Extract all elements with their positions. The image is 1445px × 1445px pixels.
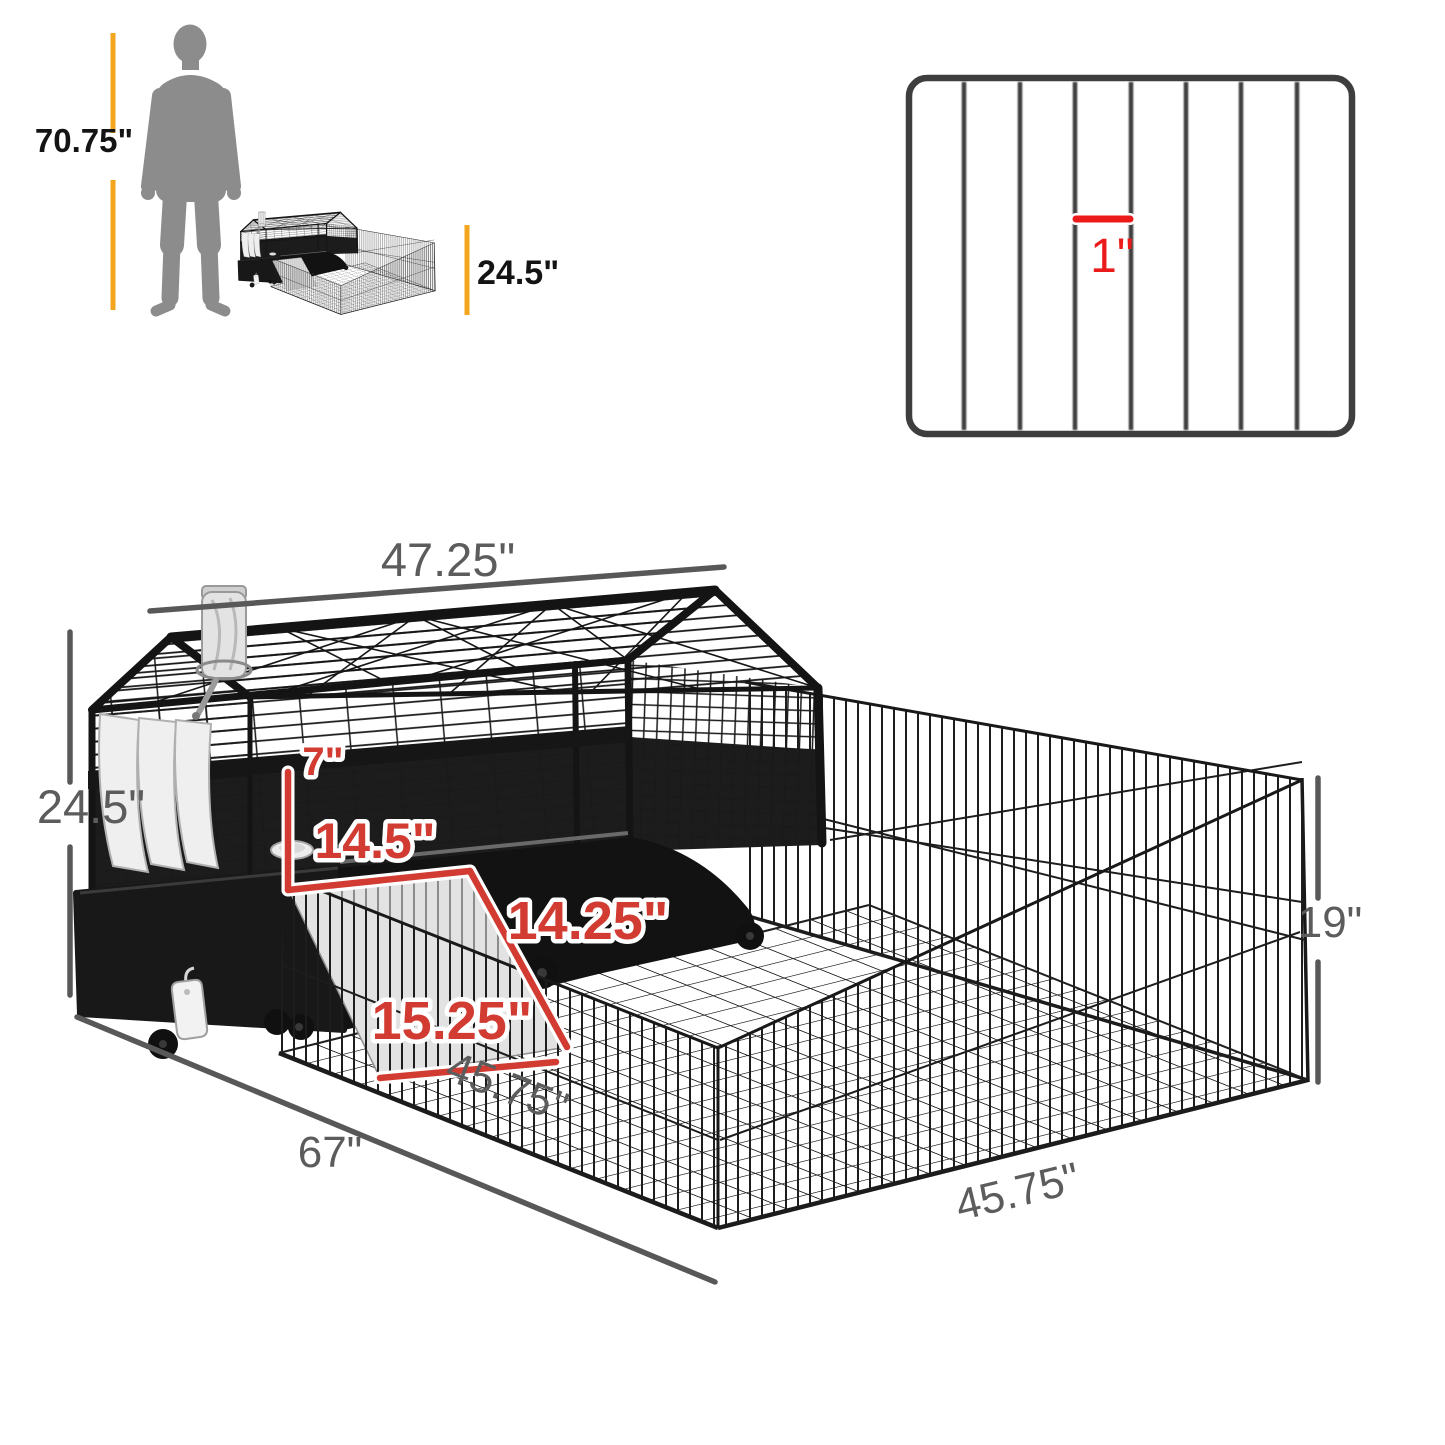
shelf-depth-label: 14.5" [314, 813, 435, 869]
pen-height-label: 19" [1298, 898, 1363, 947]
cage-width-label: 47.25" [381, 533, 515, 586]
scale-reference-panel: 70.75" 24.5" [35, 25, 559, 316]
person-silhouette [141, 25, 241, 312]
front-opening-label: 7" [302, 740, 343, 784]
cage-height-label: 24.5" [37, 780, 145, 833]
bar-gap-label: 1" [1090, 230, 1134, 283]
wire-spacing-panel: 1" [909, 78, 1352, 434]
size-reference-cage-thumbnail [238, 212, 435, 315]
ramp-length-label: 15.25" [372, 991, 533, 1051]
diagram-canvas: 70.75" 24.5" [0, 0, 1445, 1445]
product-dimension-diagram: 70.75" 24.5" [0, 0, 1445, 1445]
person-height-label: 70.75" [35, 122, 133, 159]
main-product-drawing [76, 586, 1308, 1228]
product-height-label: 24.5" [477, 254, 559, 292]
ramp-width-label: 14.25" [508, 891, 669, 951]
total-length-label: 67" [298, 1128, 363, 1177]
